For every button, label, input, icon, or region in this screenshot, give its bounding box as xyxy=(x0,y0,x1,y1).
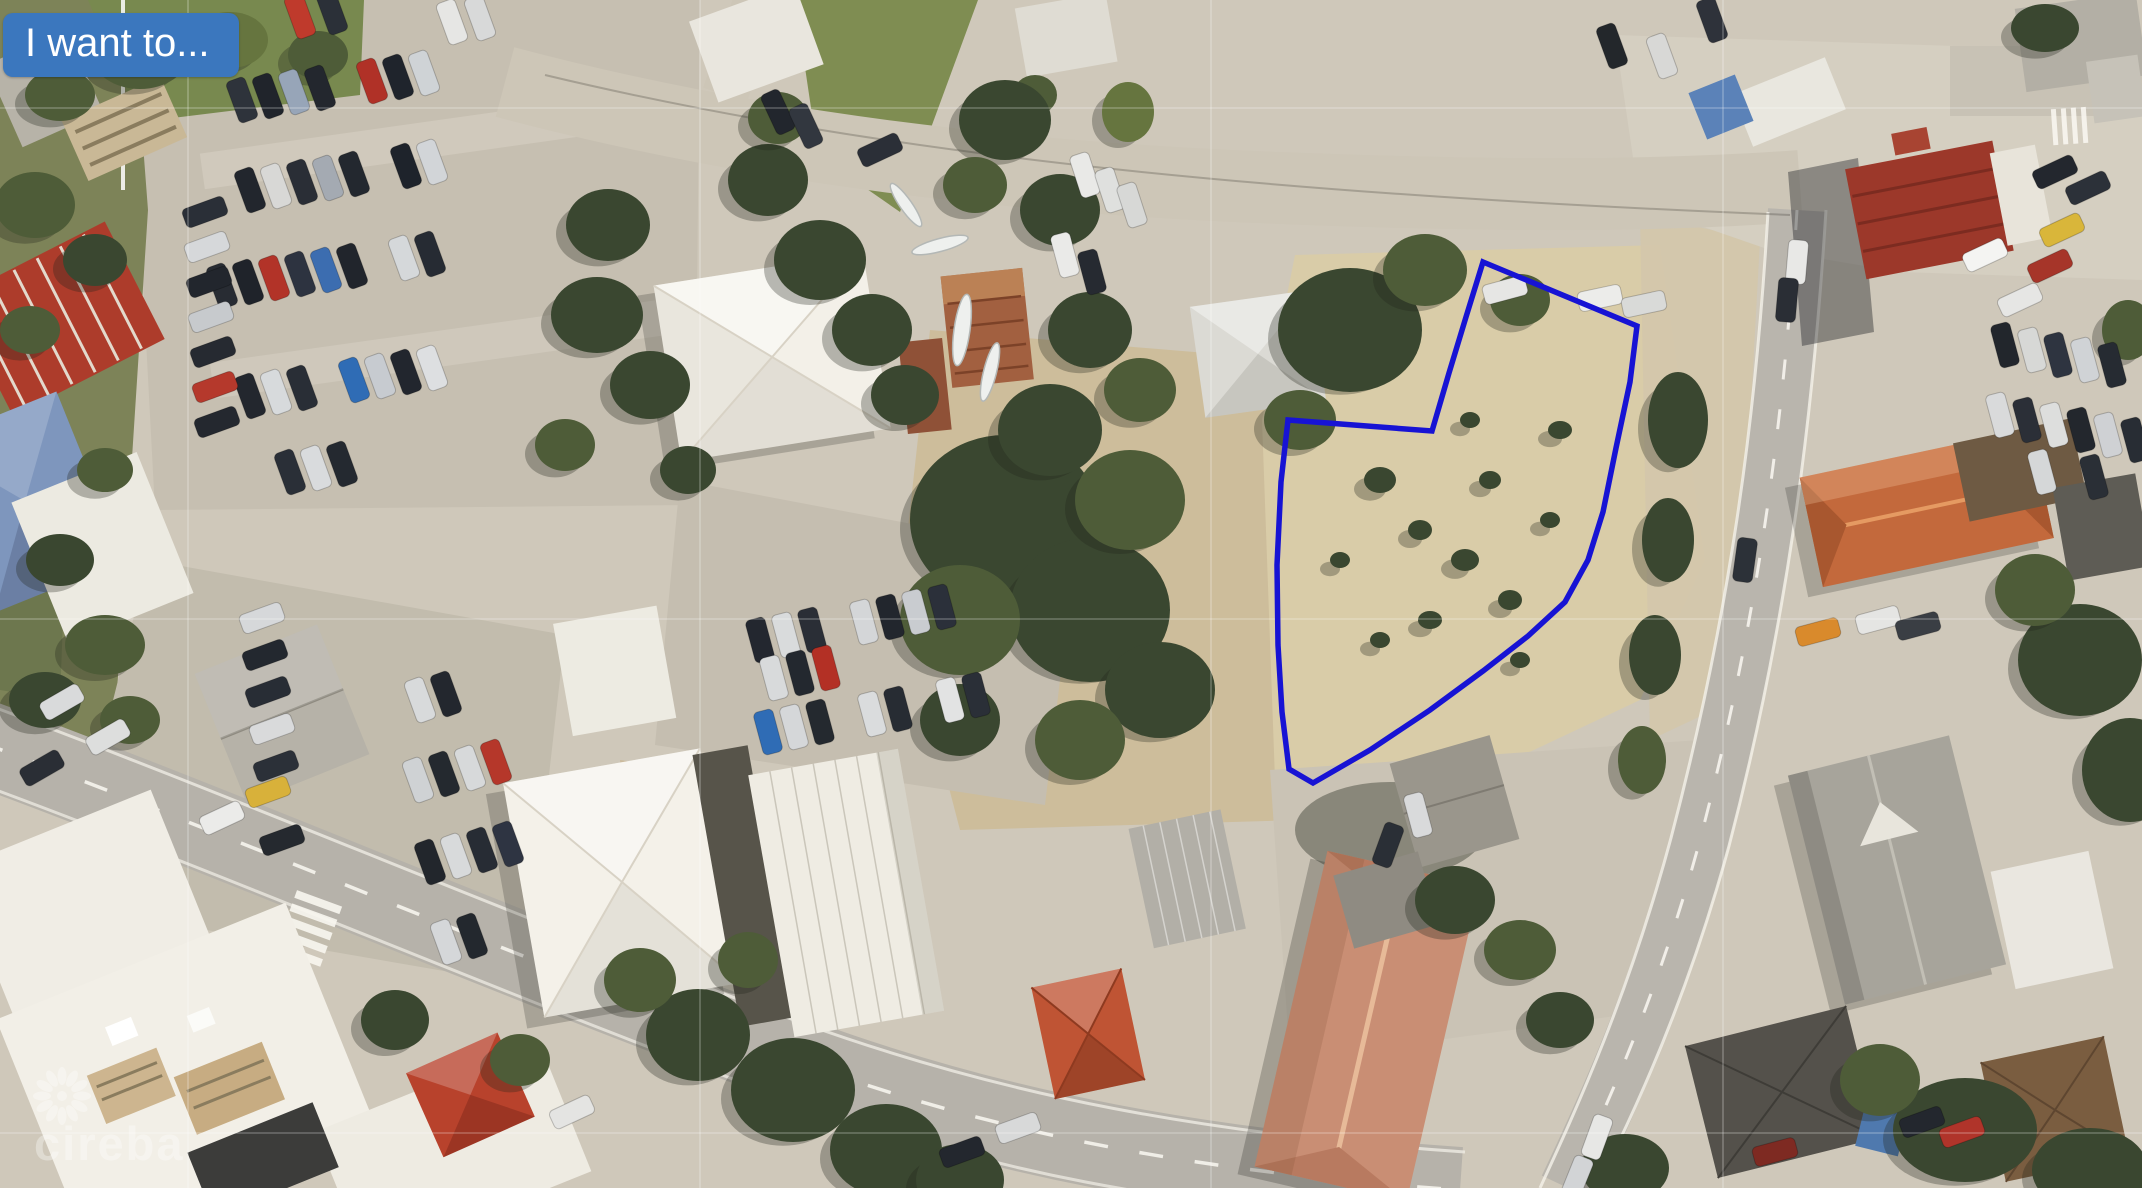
tree xyxy=(728,144,808,216)
flower-petal xyxy=(33,1092,51,1101)
tree xyxy=(65,615,145,675)
flower-petal xyxy=(58,1067,67,1085)
tree xyxy=(490,1034,550,1086)
tree xyxy=(1526,992,1594,1048)
tree xyxy=(832,294,912,366)
tree xyxy=(1102,82,1154,142)
tree xyxy=(1498,590,1522,610)
tree xyxy=(26,534,94,586)
tree xyxy=(943,157,1007,213)
tree xyxy=(2011,4,2079,52)
tree xyxy=(1540,512,1560,528)
tree xyxy=(1840,1044,1920,1116)
tree xyxy=(1415,866,1495,934)
tree xyxy=(63,234,127,286)
tree xyxy=(774,220,866,300)
tree xyxy=(1548,421,1572,439)
tree xyxy=(535,419,595,471)
tree xyxy=(1048,292,1132,368)
tree xyxy=(610,351,690,419)
tree xyxy=(660,446,716,494)
tree xyxy=(1479,471,1501,489)
tree xyxy=(959,80,1051,160)
tree xyxy=(1460,412,1480,428)
map-viewport: cireba I want to... xyxy=(0,0,2142,1188)
tree xyxy=(1618,726,1666,794)
tree xyxy=(361,990,429,1050)
tree xyxy=(731,1038,855,1142)
tree xyxy=(77,448,133,492)
tree xyxy=(1642,498,1694,582)
tree xyxy=(1075,450,1185,550)
car xyxy=(1775,277,1799,323)
tree xyxy=(1451,549,1479,571)
tree xyxy=(1364,467,1396,493)
watermark-text: cireba xyxy=(34,1117,184,1170)
flower-center xyxy=(57,1091,67,1101)
tree xyxy=(1330,552,1350,568)
tree xyxy=(551,277,643,353)
aerial-map[interactable]: cireba xyxy=(0,0,2142,1188)
tree xyxy=(604,948,676,1012)
tree xyxy=(1648,372,1708,468)
tree xyxy=(1105,642,1215,738)
tree xyxy=(1418,611,1442,629)
tree xyxy=(0,306,60,354)
tree xyxy=(871,365,939,425)
i-want-to-button[interactable]: I want to... xyxy=(3,13,239,77)
tree xyxy=(1995,554,2075,626)
tree xyxy=(1035,700,1125,780)
tree xyxy=(1408,520,1432,540)
tree xyxy=(1484,920,1556,980)
tree xyxy=(1629,615,1681,695)
tree xyxy=(1510,652,1530,668)
tree xyxy=(1104,358,1176,422)
tree xyxy=(718,932,778,988)
flower-petal xyxy=(73,1092,91,1101)
tree xyxy=(998,384,1102,476)
tree xyxy=(566,189,650,261)
tree xyxy=(1370,632,1390,648)
tree xyxy=(1383,234,1467,306)
